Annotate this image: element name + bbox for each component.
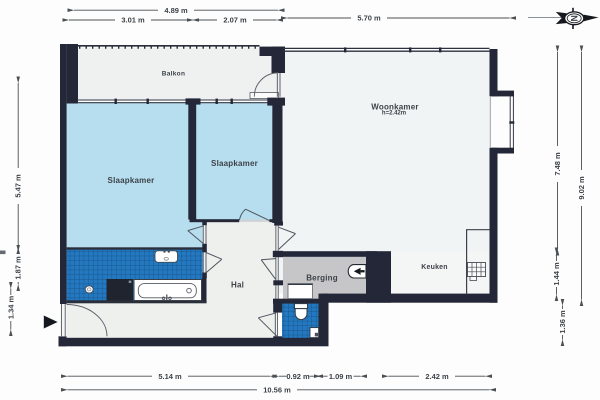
svg-text:1.44 m: 1.44 m — [552, 262, 561, 286]
svg-text:0.92 m: 0.92 m — [286, 372, 310, 381]
svg-text:Slaapkamer: Slaapkamer — [108, 176, 155, 185]
svg-text:Keuken: Keuken — [421, 264, 448, 271]
svg-text:5.47 m: 5.47 m — [14, 174, 23, 198]
svg-text:4.89 m: 4.89 m — [164, 6, 188, 15]
svg-text:Balkon: Balkon — [162, 70, 185, 77]
svg-text:1.34 m: 1.34 m — [6, 295, 15, 319]
svg-text:5.70 m: 5.70 m — [357, 14, 381, 23]
svg-text:1.87 m: 1.87 m — [14, 256, 23, 280]
svg-text:7.48 m: 7.48 m — [553, 152, 562, 176]
svg-text:5.14 m: 5.14 m — [158, 372, 182, 381]
svg-text:3.01 m: 3.01 m — [121, 16, 145, 25]
svg-text:1.09 m: 1.09 m — [329, 372, 353, 381]
svg-text:Hal: Hal — [231, 280, 244, 289]
svg-text:Berging: Berging — [306, 274, 338, 283]
svg-text:2.07 m: 2.07 m — [223, 16, 247, 25]
svg-text:h=2.42m: h=2.42m — [382, 111, 406, 117]
svg-text:10.56 m: 10.56 m — [263, 385, 291, 394]
svg-text:9.02 m: 9.02 m — [577, 176, 586, 200]
svg-text:N: N — [569, 15, 579, 21]
svg-text:Slaapkamer: Slaapkamer — [211, 159, 258, 168]
svg-text:2.42 m: 2.42 m — [425, 372, 449, 381]
svg-text:1.36 m: 1.36 m — [558, 310, 567, 334]
